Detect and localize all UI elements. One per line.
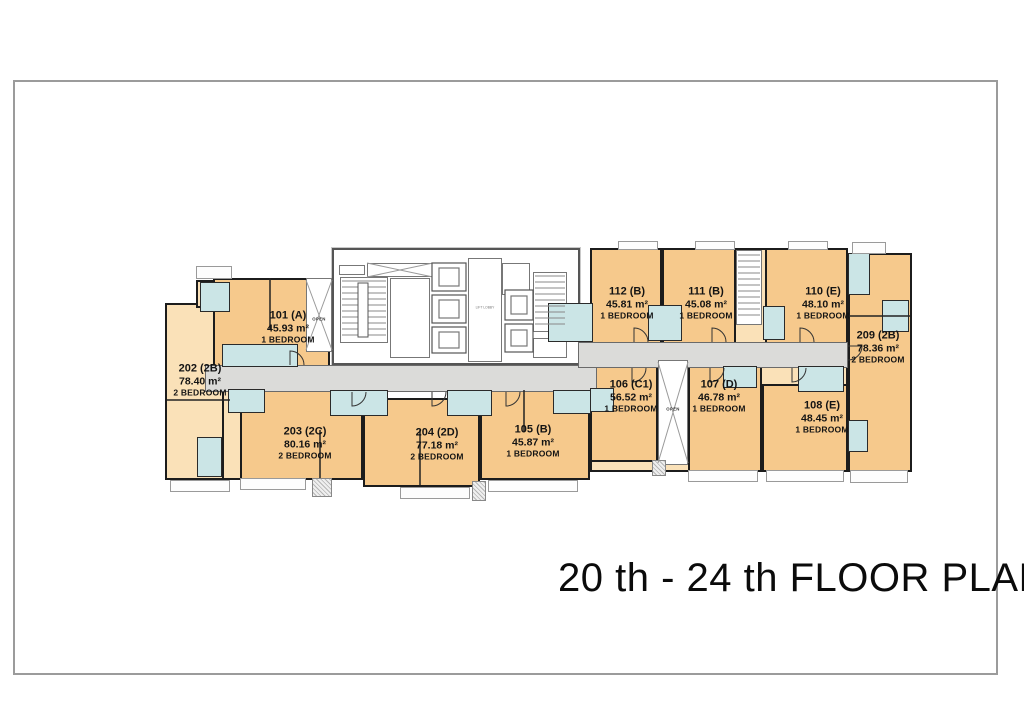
unit-bedrooms: 1 BEDROOM — [692, 404, 745, 414]
unit-bedrooms: 1 BEDROOM — [795, 425, 848, 435]
unit-area: 77.18 m² — [410, 439, 463, 451]
unit-area: 80.16 m² — [278, 438, 331, 450]
unit-id: 110 (E) — [796, 285, 849, 298]
unit-label-203: 203 (2C) 80.16 m² 2 BEDROOM — [278, 425, 331, 460]
unit-label-204: 204 (2D) 77.18 m² 2 BEDROOM — [410, 426, 463, 461]
corridor-left — [205, 365, 597, 392]
corridor-right — [578, 342, 848, 368]
balcony — [400, 487, 470, 499]
balcony — [850, 470, 908, 483]
unit-bedrooms: 2 BEDROOM — [278, 451, 331, 461]
bathroom — [882, 300, 909, 332]
unit-label-101: 101 (A) 45.93 m² 1 BEDROOM — [261, 309, 314, 344]
core-label-box — [339, 265, 365, 275]
bathroom — [848, 420, 868, 452]
unit-bedrooms: 1 BEDROOM — [600, 311, 653, 321]
unit-bedrooms: 1 BEDROOM — [506, 449, 559, 459]
balcony — [695, 241, 735, 250]
stairwell-left — [340, 277, 388, 343]
unit-area: 48.45 m² — [795, 412, 848, 424]
bathroom — [798, 366, 844, 392]
smoke-shaft — [367, 263, 433, 277]
unit-label-105: 105 (B) 45.87 m² 1 BEDROOM — [506, 423, 559, 458]
bathroom — [197, 437, 222, 477]
core-rooms-left — [390, 278, 430, 358]
ac-ledge — [472, 481, 486, 501]
unit-label-209: 209 (2B) 78.36 m² 2 BEDROOM — [851, 329, 904, 364]
unit-area: 48.10 m² — [796, 298, 849, 310]
unit-area: 56.52 m² — [604, 391, 657, 403]
unit-label-110: 110 (E) 48.10 m² 1 BEDROOM — [796, 285, 849, 320]
unit-bedrooms: 2 BEDROOM — [410, 452, 463, 462]
ac-ledge — [652, 460, 666, 476]
balcony — [170, 480, 230, 492]
lift-lobby-label: LIFT LOBBY — [476, 306, 495, 309]
floor-plan-title: 20 th - 24 th FLOOR PLAN — [558, 556, 990, 601]
unit-id: 101 (A) — [261, 309, 314, 322]
bathroom — [553, 390, 591, 414]
ac-ledge — [312, 478, 332, 497]
unit-area: 45.08 m² — [679, 298, 732, 310]
unit-label-107: 107 (D) 46.78 m² 1 BEDROOM — [692, 378, 745, 413]
unit-area: 78.40 m² — [173, 375, 226, 387]
bathroom — [447, 390, 492, 416]
bathroom — [222, 344, 298, 367]
bathroom — [200, 282, 230, 312]
lift-lobby — [468, 258, 502, 362]
balcony — [196, 266, 232, 279]
bathroom — [848, 253, 870, 295]
unit-label-108: 108 (E) 48.45 m² 1 BEDROOM — [795, 399, 848, 434]
unit-bedrooms: 1 BEDROOM — [604, 404, 657, 414]
unit-id: 203 (2C) — [278, 425, 331, 438]
unit-id: 209 (2B) — [851, 329, 904, 342]
unit-area: 45.81 m² — [600, 298, 653, 310]
core-rooms-right — [502, 263, 530, 295]
unit-bedrooms: 1 BEDROOM — [796, 311, 849, 321]
unit-id: 112 (B) — [600, 285, 653, 298]
bathroom — [330, 390, 388, 416]
unit-bedrooms: 1 BEDROOM — [679, 311, 732, 321]
unit-id: 204 (2D) — [410, 426, 463, 439]
balcony — [788, 241, 828, 250]
balcony — [688, 470, 758, 482]
unit-label-111: 111 (B) 45.08 m² 1 BEDROOM — [679, 285, 732, 320]
unit-id: 106 (C1) — [604, 378, 657, 391]
unit-label-112: 112 (B) 45.81 m² 1 BEDROOM — [600, 285, 653, 320]
floor-plan-page: 101 (A) 45.93 m² 1 BEDROOM 202 (2B) 78.4… — [0, 0, 1024, 723]
open-shaft-right — [658, 360, 688, 465]
stairwell-mid-right-wing — [736, 250, 762, 325]
unit-id: 111 (B) — [679, 285, 732, 298]
unit-id: 202 (2B) — [173, 362, 226, 375]
unit-id: 105 (B) — [506, 423, 559, 436]
bathroom — [548, 303, 593, 342]
open-shaft-right-label: OPEN — [666, 408, 679, 412]
balcony — [488, 480, 578, 492]
unit-area: 46.78 m² — [692, 391, 745, 403]
bathroom — [228, 389, 265, 413]
unit-id: 108 (E) — [795, 399, 848, 412]
bathroom — [763, 306, 785, 340]
unit-area: 78.36 m² — [851, 342, 904, 354]
unit-area: 45.87 m² — [506, 436, 559, 448]
unit-bedrooms: 2 BEDROOM — [851, 355, 904, 365]
unit-id: 107 (D) — [692, 378, 745, 391]
balcony — [618, 241, 658, 250]
unit-label-106: 106 (C1) 56.52 m² 1 BEDROOM — [604, 378, 657, 413]
balcony — [852, 242, 886, 254]
unit-bedrooms: 1 BEDROOM — [261, 335, 314, 345]
balcony — [766, 470, 844, 482]
unit-label-202: 202 (2B) 78.40 m² 2 BEDROOM — [173, 362, 226, 397]
balcony — [240, 478, 306, 490]
unit-bedrooms: 2 BEDROOM — [173, 388, 226, 398]
unit-area: 45.93 m² — [261, 322, 314, 334]
open-shaft-left-label: OPEN — [312, 318, 325, 322]
